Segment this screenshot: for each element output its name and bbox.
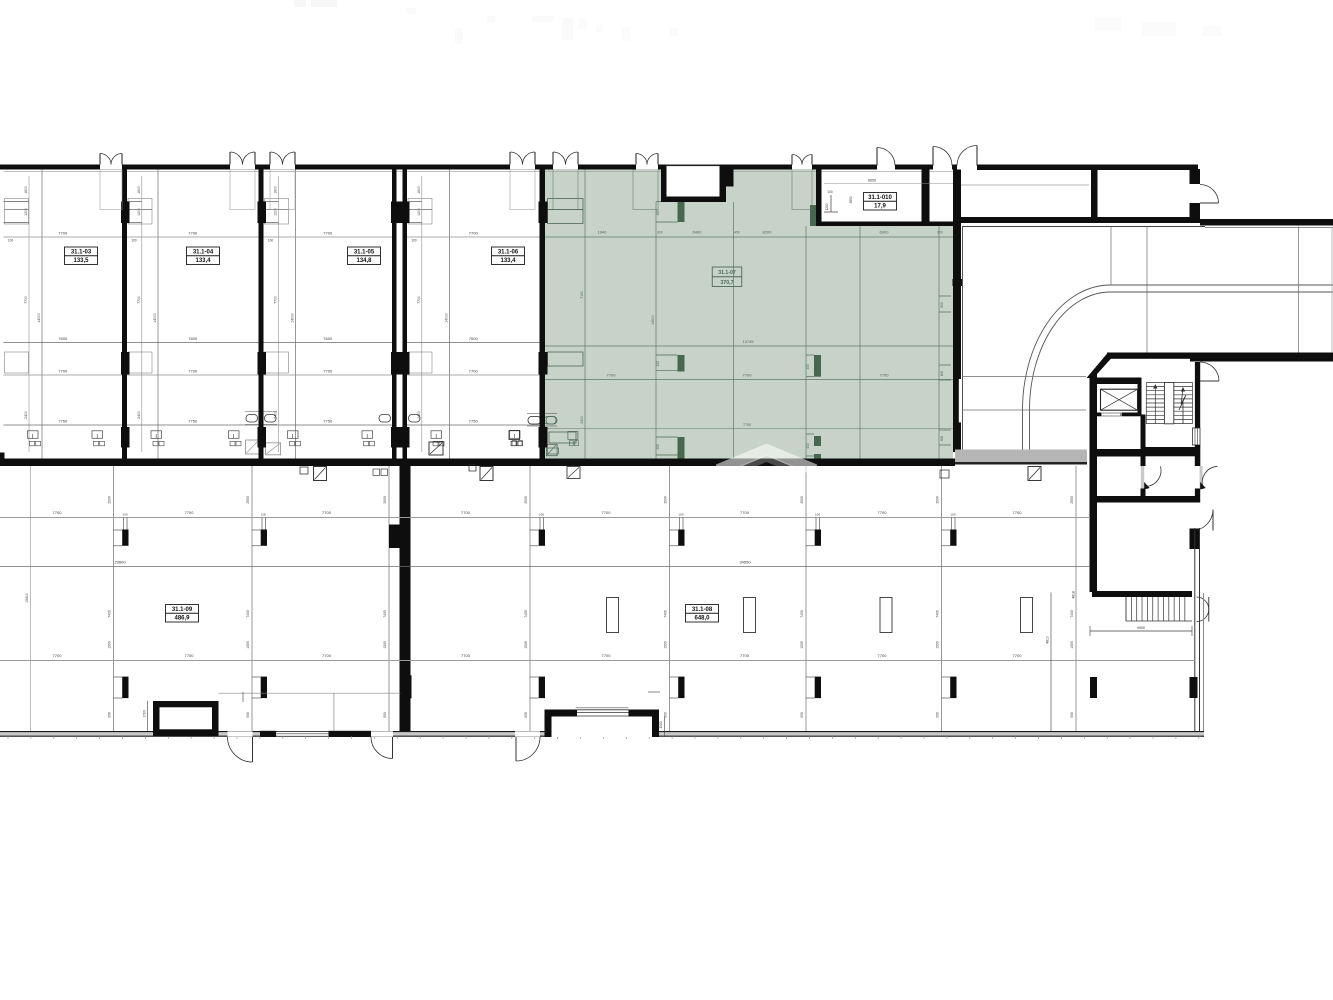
svg-text:100: 100: [131, 239, 137, 243]
svg-text:100: 100: [268, 239, 274, 243]
svg-text:100: 100: [815, 513, 820, 517]
svg-text:1500: 1500: [246, 641, 250, 649]
svg-text:2900: 2900: [1070, 496, 1074, 504]
svg-text:900: 900: [246, 712, 250, 718]
svg-text:900: 900: [524, 712, 528, 718]
svg-text:1500: 1500: [659, 721, 663, 728]
svg-text:7150: 7150: [580, 291, 584, 299]
svg-text:7700: 7700: [137, 296, 141, 304]
svg-text:2900: 2900: [246, 496, 250, 504]
svg-text:17,9: 17,9: [874, 204, 886, 210]
svg-text:600: 600: [940, 371, 944, 377]
svg-text:2900: 2900: [664, 496, 668, 504]
svg-text:400: 400: [806, 364, 810, 370]
svg-text:133,4: 133,4: [500, 258, 516, 264]
svg-text:900: 900: [1070, 712, 1074, 718]
svg-text:100: 100: [8, 239, 14, 243]
svg-text:7700: 7700: [53, 510, 63, 515]
svg-text:1500: 1500: [664, 641, 668, 649]
svg-text:7600: 7600: [188, 336, 198, 341]
svg-text:7600: 7600: [323, 336, 333, 341]
svg-text:14000: 14000: [445, 313, 449, 323]
svg-text:600: 600: [940, 302, 944, 308]
svg-text:2900: 2900: [936, 496, 940, 504]
svg-text:7700: 7700: [322, 510, 332, 515]
svg-text:7400: 7400: [108, 610, 112, 618]
svg-text:2900: 2900: [383, 496, 387, 504]
svg-text:31.1-05: 31.1-05: [354, 250, 375, 256]
svg-text:7600: 7600: [58, 336, 68, 341]
svg-text:1200: 1200: [825, 203, 829, 210]
svg-text:15400: 15400: [25, 593, 29, 603]
svg-text:7400: 7400: [524, 610, 528, 618]
svg-text:1500: 1500: [800, 641, 804, 649]
svg-text:2400: 2400: [580, 416, 584, 424]
svg-text:100: 100: [122, 513, 127, 517]
svg-text:7700: 7700: [469, 368, 479, 373]
svg-text:7700: 7700: [58, 230, 68, 235]
svg-text:486,9: 486,9: [174, 616, 190, 622]
svg-text:7700: 7700: [461, 510, 471, 515]
svg-text:7700: 7700: [323, 230, 333, 235]
svg-text:648,0: 648,0: [694, 616, 710, 622]
svg-text:7700: 7700: [24, 296, 28, 304]
svg-text:1600: 1600: [137, 186, 141, 194]
svg-text:7750: 7750: [323, 418, 333, 423]
svg-text:1500: 1500: [1070, 641, 1074, 649]
svg-text:7700: 7700: [602, 653, 612, 658]
svg-text:7400: 7400: [936, 610, 940, 618]
svg-text:400: 400: [806, 443, 810, 449]
svg-text:34650: 34650: [739, 560, 751, 565]
svg-text:7700: 7700: [878, 653, 888, 658]
svg-text:14000: 14000: [153, 313, 157, 323]
svg-text:6000: 6000: [880, 230, 890, 235]
svg-text:900: 900: [383, 712, 387, 718]
svg-text:7600: 7600: [469, 336, 479, 341]
svg-text:1500: 1500: [524, 641, 528, 649]
svg-text:100: 100: [678, 513, 683, 517]
svg-text:8200: 8200: [763, 230, 773, 235]
svg-text:14000: 14000: [37, 313, 41, 323]
svg-text:31.1-04: 31.1-04: [193, 250, 214, 256]
svg-text:7400: 7400: [800, 610, 804, 618]
svg-text:7700: 7700: [1013, 510, 1023, 515]
svg-text:7750: 7750: [188, 418, 198, 423]
svg-text:1760: 1760: [143, 710, 147, 718]
svg-text:100: 100: [539, 513, 544, 517]
svg-text:2900: 2900: [108, 496, 112, 504]
svg-text:7700: 7700: [185, 653, 195, 658]
svg-text:7700: 7700: [58, 368, 68, 373]
svg-text:900: 900: [664, 712, 668, 718]
svg-text:2900: 2900: [524, 496, 528, 504]
svg-text:7700: 7700: [188, 368, 198, 373]
svg-text:2400: 2400: [24, 411, 28, 419]
svg-text:100: 100: [827, 190, 833, 194]
svg-text:1600: 1600: [24, 186, 28, 194]
svg-text:31.1-06: 31.1-06: [498, 250, 519, 256]
svg-text:7700: 7700: [188, 230, 198, 235]
svg-text:6400: 6400: [693, 230, 703, 235]
svg-text:31.1-03: 31.1-03: [71, 250, 92, 256]
svg-text:9950: 9950: [1137, 626, 1145, 630]
svg-text:900: 900: [800, 712, 804, 718]
svg-text:1600: 1600: [273, 186, 277, 194]
svg-text:100: 100: [261, 513, 266, 517]
svg-text:7700: 7700: [1013, 653, 1023, 658]
svg-text:1500: 1500: [936, 641, 940, 649]
svg-text:7700: 7700: [53, 653, 63, 658]
svg-text:2400: 2400: [137, 411, 141, 419]
svg-text:29800: 29800: [114, 560, 126, 565]
svg-text:133,5: 133,5: [73, 258, 89, 264]
svg-text:7700: 7700: [417, 296, 421, 304]
svg-text:600: 600: [940, 436, 944, 442]
svg-text:4810: 4810: [1046, 636, 1050, 644]
svg-text:1500: 1500: [383, 641, 387, 649]
svg-text:31.1-010: 31.1-010: [868, 195, 892, 201]
svg-text:7700: 7700: [740, 653, 750, 658]
svg-text:600: 600: [937, 231, 943, 235]
svg-text:7700: 7700: [469, 230, 479, 235]
svg-text:133,4: 133,4: [195, 258, 211, 264]
svg-text:7700: 7700: [880, 373, 890, 378]
svg-text:2900: 2900: [800, 496, 804, 504]
svg-text:7700: 7700: [185, 510, 195, 515]
svg-text:7700: 7700: [740, 510, 750, 515]
svg-text:450: 450: [734, 231, 740, 235]
svg-text:600: 600: [657, 231, 663, 235]
svg-text:7400: 7400: [664, 610, 668, 618]
svg-text:900: 900: [936, 712, 940, 718]
svg-text:400: 400: [656, 361, 660, 367]
svg-text:14500: 14500: [651, 315, 655, 325]
svg-text:370,7: 370,7: [721, 280, 734, 286]
svg-text:134,8: 134,8: [356, 258, 372, 264]
svg-text:7700: 7700: [878, 510, 888, 515]
svg-text:7700: 7700: [322, 653, 332, 658]
svg-text:900: 900: [108, 712, 112, 718]
svg-text:100: 100: [411, 239, 417, 243]
svg-text:7700: 7700: [602, 510, 612, 515]
svg-text:31.1-08: 31.1-08: [692, 607, 713, 613]
svg-text:1600: 1600: [417, 186, 421, 194]
svg-text:7750: 7750: [58, 418, 68, 423]
svg-text:7400: 7400: [383, 610, 387, 618]
svg-text:1940: 1940: [598, 230, 608, 235]
svg-text:31.1-09: 31.1-09: [172, 607, 193, 613]
svg-text:7750: 7750: [469, 418, 479, 423]
svg-text:7700: 7700: [743, 423, 751, 427]
svg-text:7700: 7700: [607, 373, 617, 378]
svg-text:7700: 7700: [273, 296, 277, 304]
svg-text:400: 400: [656, 444, 660, 450]
svg-text:1500: 1500: [108, 641, 112, 649]
svg-text:4818: 4818: [1072, 591, 1076, 599]
svg-text:400: 400: [656, 210, 660, 216]
svg-text:3850: 3850: [849, 196, 853, 203]
svg-text:7400: 7400: [1070, 610, 1074, 618]
svg-text:100: 100: [950, 513, 955, 517]
svg-text:7700: 7700: [461, 653, 471, 658]
svg-text:13745: 13745: [742, 339, 754, 344]
svg-text:7700: 7700: [323, 368, 333, 373]
svg-text:6650: 6650: [868, 179, 876, 183]
svg-text:14000: 14000: [291, 313, 295, 323]
svg-text:7400: 7400: [246, 610, 250, 618]
svg-text:7700: 7700: [743, 373, 753, 378]
svg-text:31.1-07: 31.1-07: [718, 270, 736, 276]
